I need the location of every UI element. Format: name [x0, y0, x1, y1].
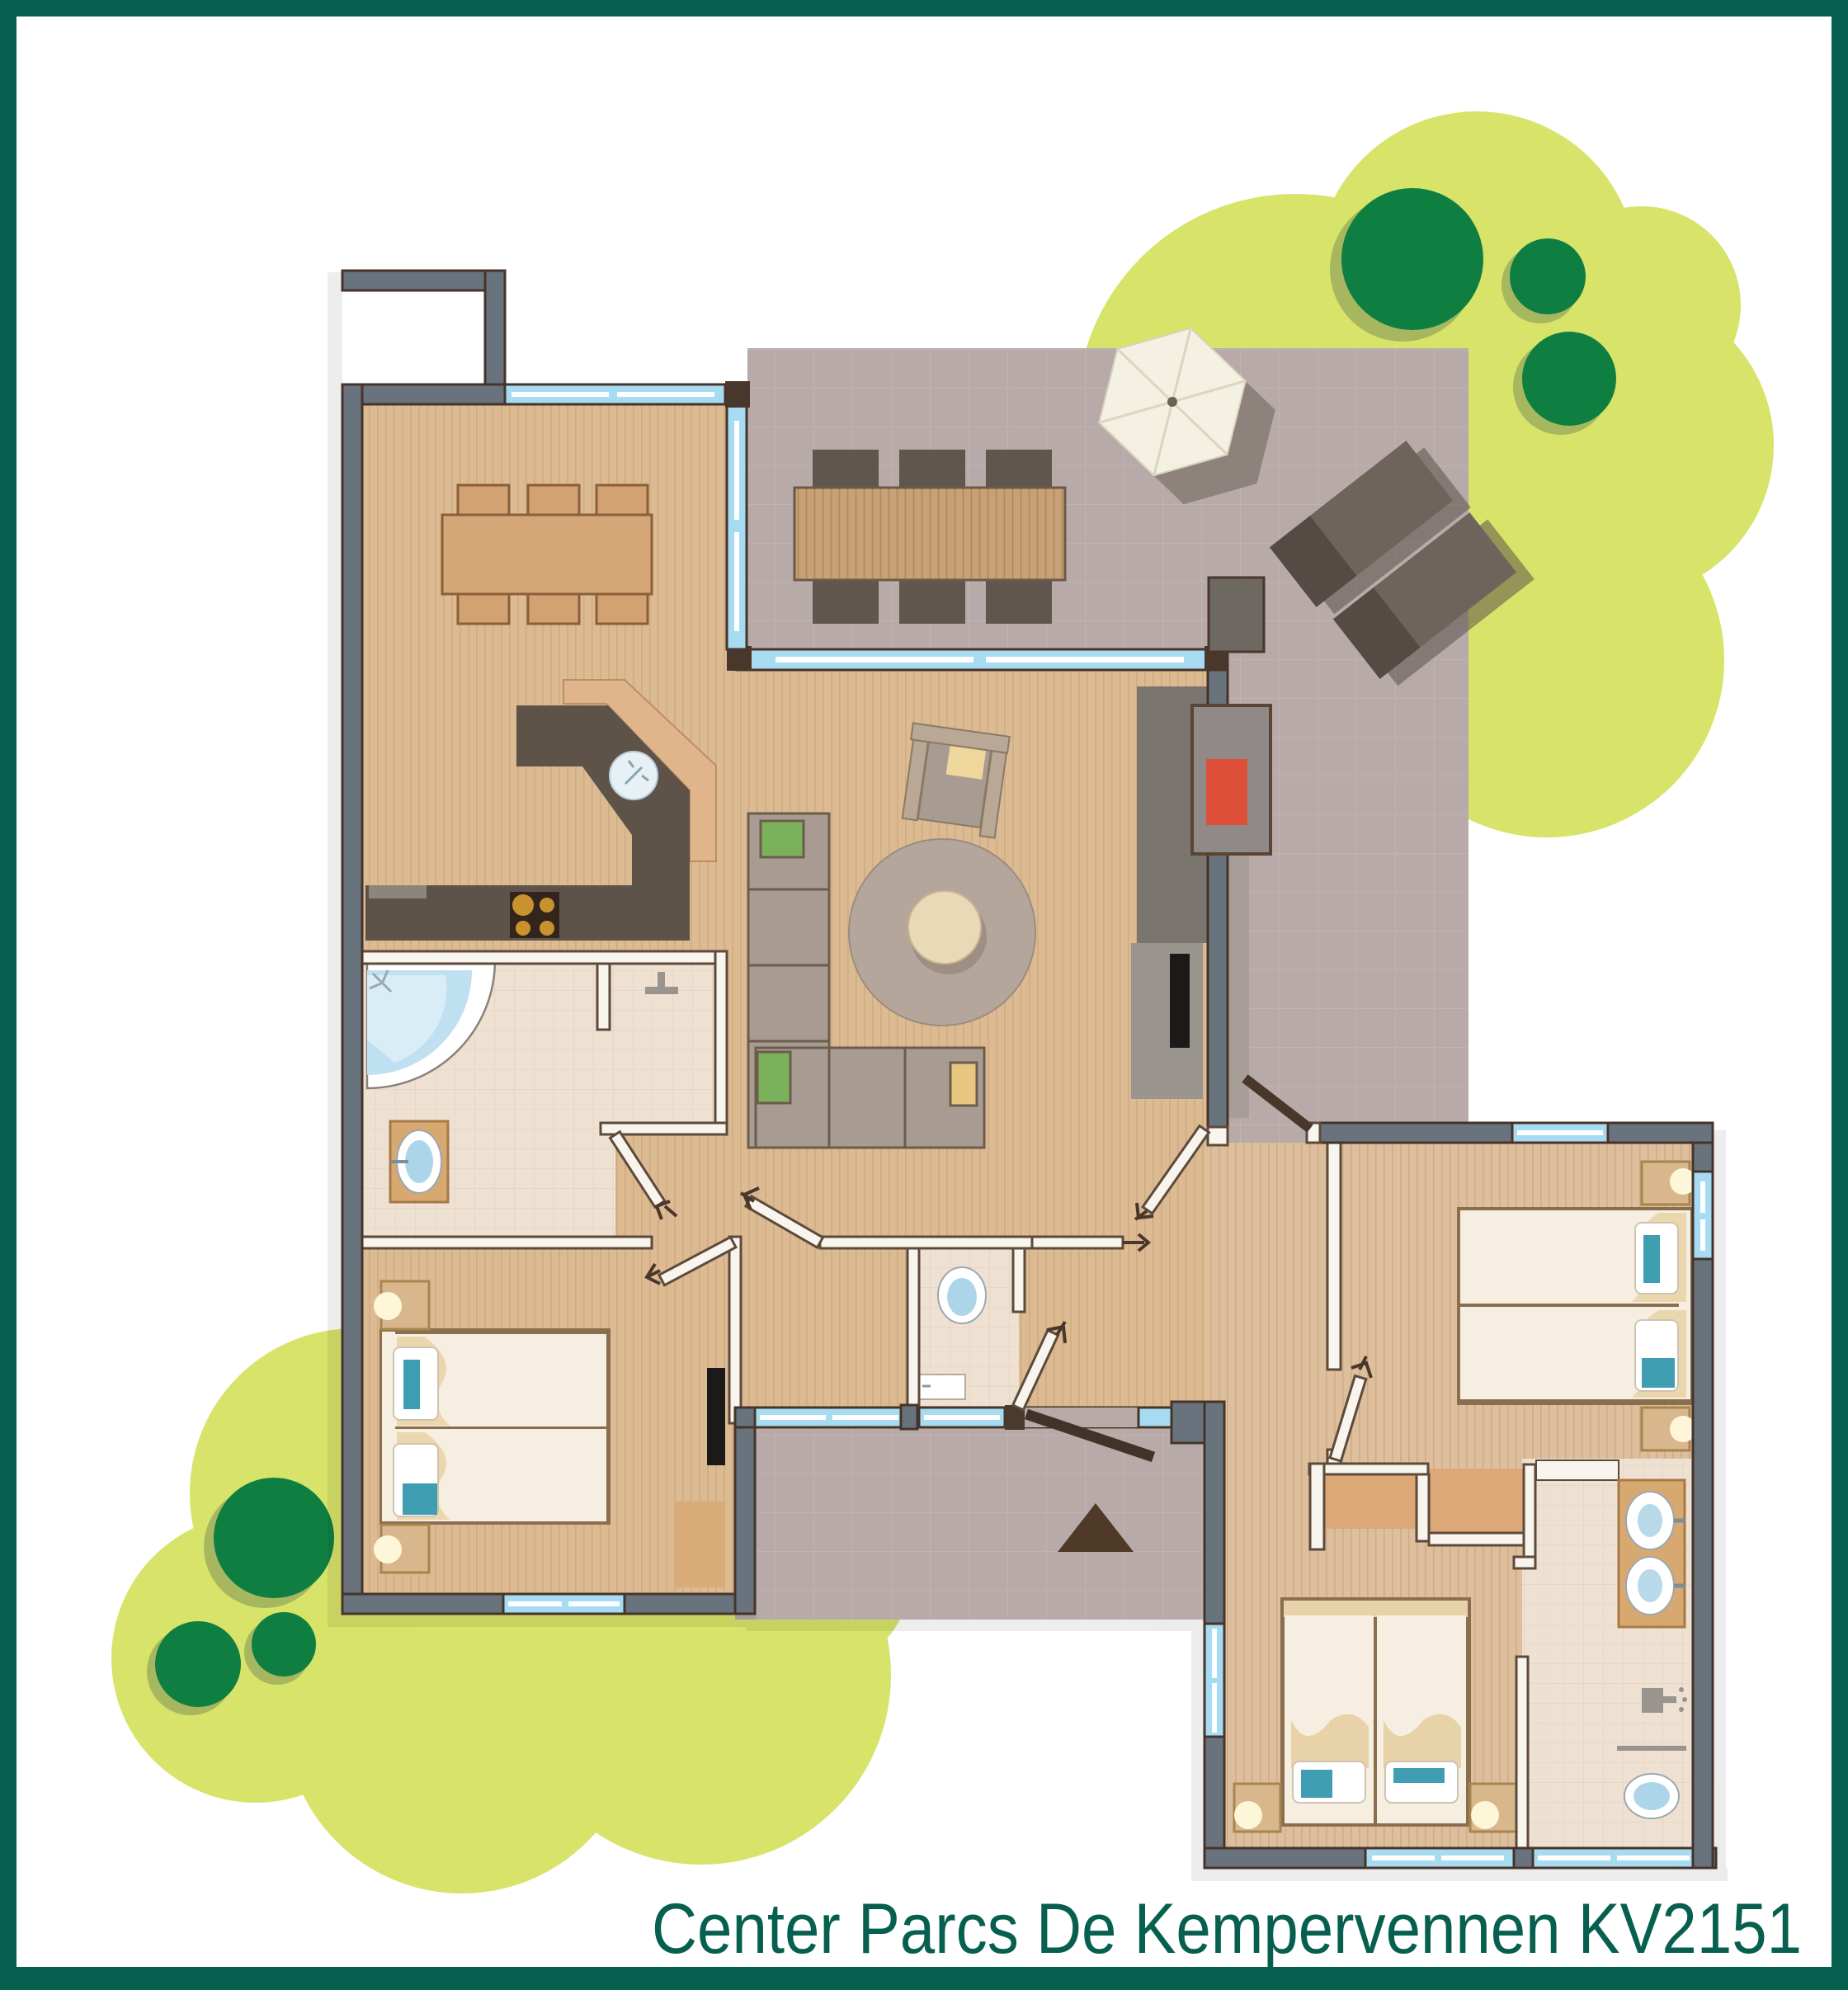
svg-text:Center Parcs De Kempervennen K: Center Parcs De Kempervennen KV2151	[652, 1889, 1802, 1969]
